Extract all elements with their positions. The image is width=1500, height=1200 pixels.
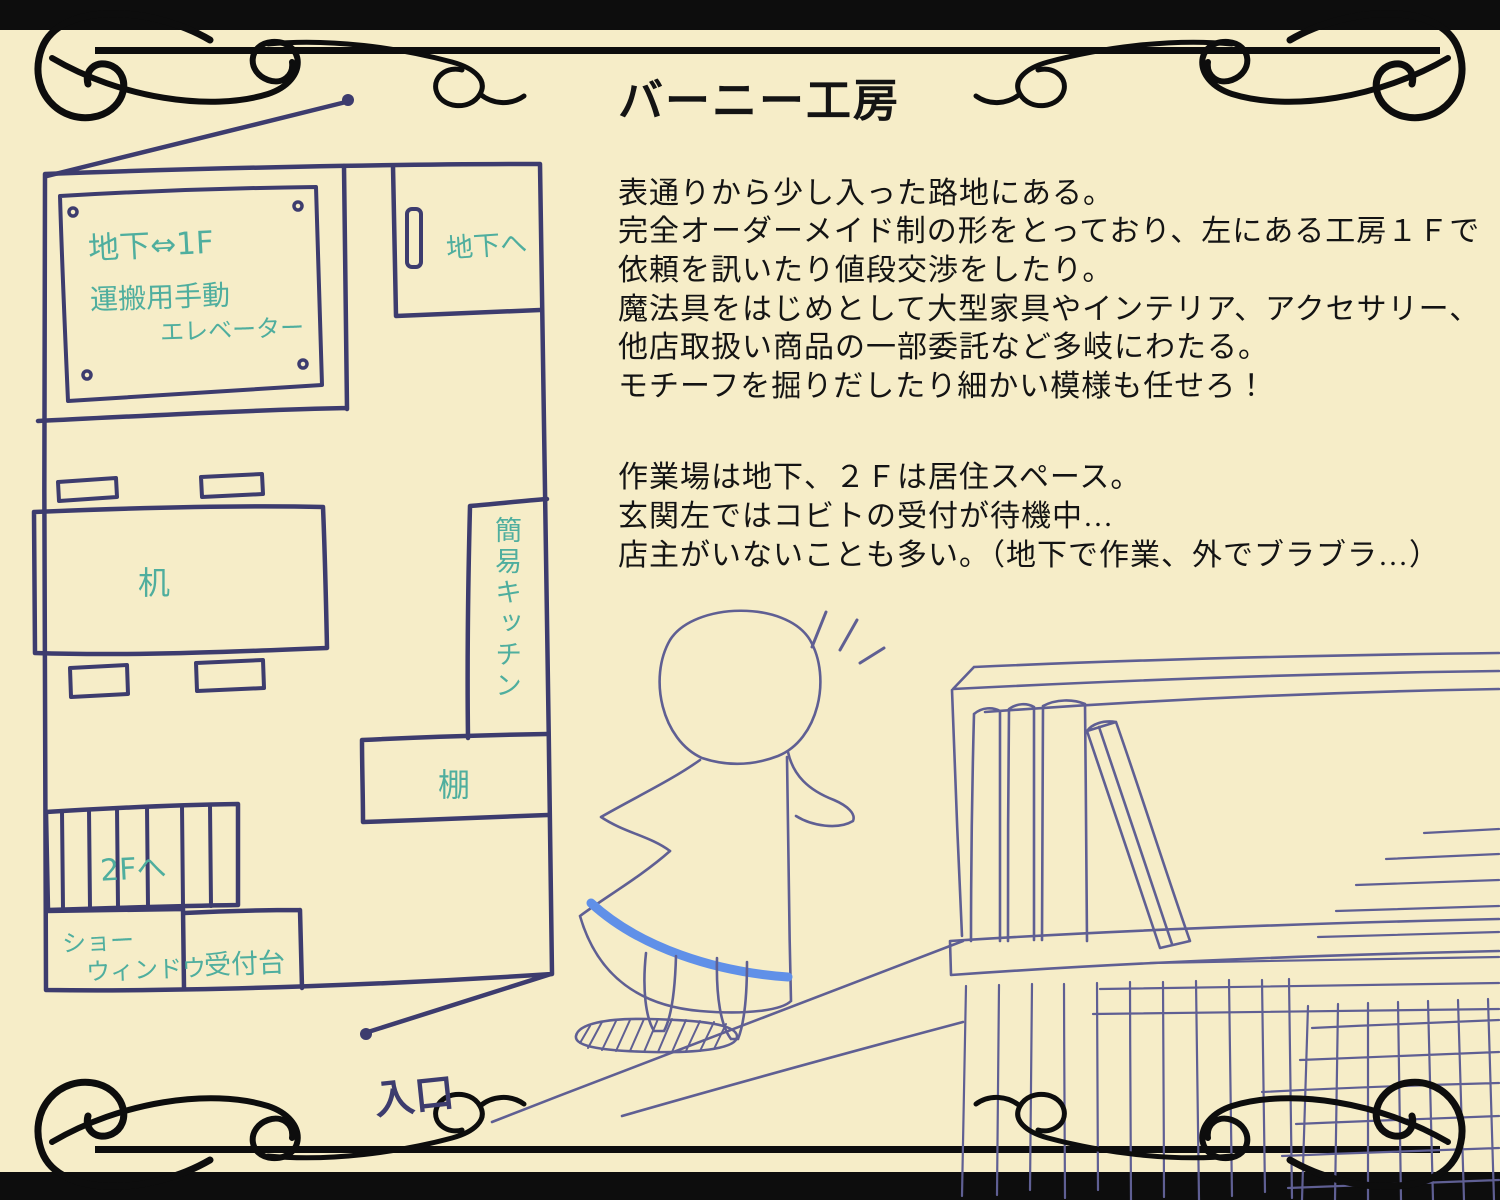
label-desk: 机 [138,558,170,604]
label-elevator-sign-line3: エレベーター [159,307,304,347]
label-elevator-sign-line1: 地下⇔1F [87,217,215,269]
description-line: 他店取扱い商品の一部委託など多岐にわたる。 [618,322,1269,366]
page-title: バーニー工房 [618,64,900,129]
label-entrance: 入口 [371,1060,457,1126]
label-reception: 受付台 [203,941,285,983]
corner-flourish-bottom-right [976,1082,1462,1186]
description-line: モチーフを掘りだしたり細かい模様も任せろ！ [618,361,1267,405]
corner-flourish-top-right [976,14,1462,118]
description-line: 店主がいないことも多い。（地下で作業、外でブラブラ…） [618,530,1440,574]
page: バーニー工房 表通りから少し入った路地にある。 完全オーダーメイド制の形をとって… [0,0,1500,1200]
corner-flourish-top-left [38,14,524,118]
label-to-2f: 2Fへ [99,842,168,889]
label-show-window-line2: ウィンドウ [85,948,206,987]
label-shelf: 棚 [438,760,470,806]
description-line: 作業場は地下、２Ｆは居住スペース。 [618,452,1141,496]
label-to-basement: 地下へ [445,221,529,266]
description-line: 玄関左ではコビトの受付が待機中… [618,491,1114,535]
label-kitchen: 簡易キッチン [486,516,525,702]
description-line: 完全オーダーメイド制の形をとっており、左にある工房１Ｆで [618,206,1480,250]
description-line: 依頼を訊いたり値段交渉をしたり。 [618,245,1113,289]
